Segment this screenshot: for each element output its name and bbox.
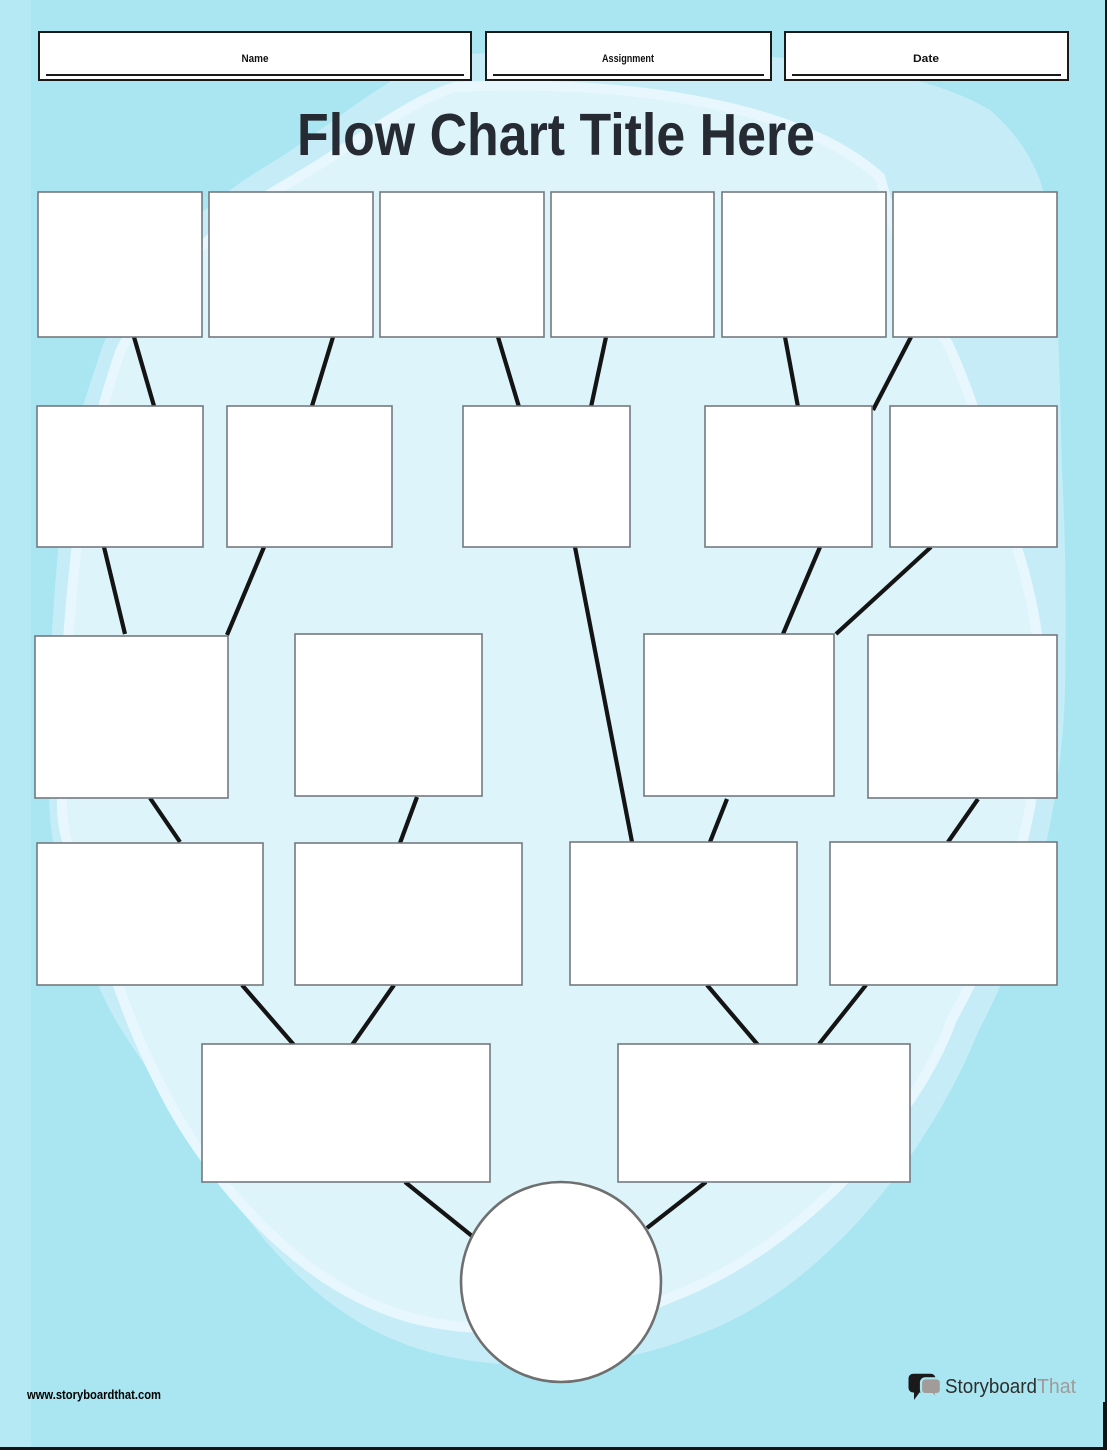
svg-text:www.storyboardthat.com: www.storyboardthat.com [26,1387,161,1402]
svg-text:Storyboard: Storyboard [945,1376,1037,1398]
svg-text:Name: Name [242,53,269,65]
svg-text:Assignment: Assignment [602,53,654,65]
svg-text:That: That [1037,1376,1076,1398]
svg-text:Date: Date [913,53,939,65]
svg-text:Flow Chart Title Here: Flow Chart Title Here [297,102,815,168]
